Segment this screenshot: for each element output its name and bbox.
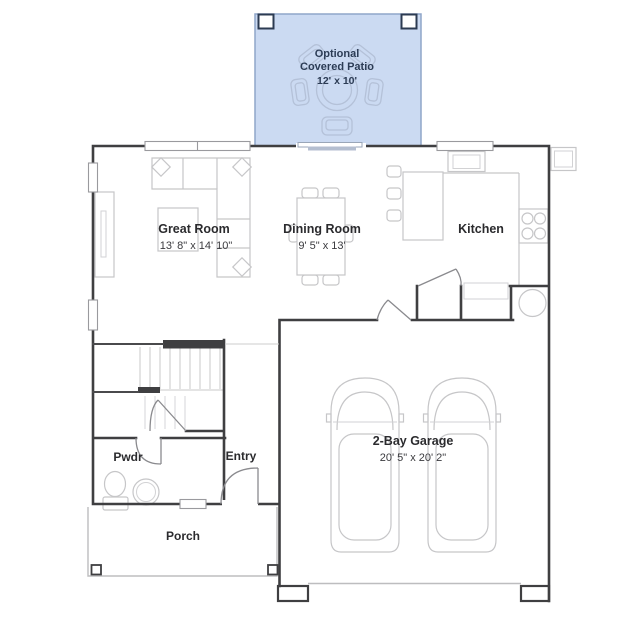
entry-label: Entry	[226, 449, 257, 463]
bar-stool	[387, 166, 401, 177]
stair-treads-upper	[140, 347, 220, 389]
kitchen-island	[403, 172, 443, 240]
water-heater	[519, 290, 546, 317]
patio-label-line2: Covered Patio	[300, 61, 374, 73]
porch-post	[268, 565, 278, 575]
car-outline	[327, 378, 404, 552]
burner	[522, 213, 533, 224]
sectional-sofa	[152, 158, 250, 277]
stair-railing-mid	[138, 387, 160, 393]
floor-plan-drawing: Optional Covered Patio 12' x 10'	[0, 0, 640, 640]
patio-dimensions: 12' x 10'	[317, 75, 357, 87]
dining-chair	[323, 275, 339, 285]
burner	[535, 213, 546, 224]
hall-closet-door	[418, 269, 461, 286]
garage-entry-door	[377, 300, 411, 320]
great-room-dimensions: 13' 8" x 14' 10"	[160, 240, 233, 252]
dining-chair	[302, 188, 318, 198]
garage-wall-stub	[521, 586, 549, 601]
burner	[535, 228, 546, 239]
car-mirror	[327, 414, 332, 422]
patio-post	[259, 15, 274, 29]
dining-table	[297, 198, 345, 275]
great-room-label: Great Room	[158, 222, 230, 236]
patio-post	[402, 15, 417, 29]
car-mirror	[424, 414, 429, 422]
kitchen-window	[437, 142, 493, 151]
tv-console	[95, 192, 114, 277]
tv	[101, 211, 106, 257]
porch-window	[180, 500, 206, 509]
garage-wall-stub	[278, 586, 308, 601]
exterior-equipment-pad-inner	[555, 151, 573, 167]
burner	[522, 228, 533, 239]
toilet-bowl	[105, 472, 126, 497]
patio-sliding-door	[296, 143, 366, 151]
garage-dimensions: 20' 5" x 20' 2"	[380, 452, 447, 464]
interior-walls	[93, 344, 163, 392]
powder-sink-basin	[137, 483, 156, 502]
car-outline	[424, 378, 501, 552]
dining-room-dimensions: 9' 5" x 13'	[298, 240, 345, 252]
pantry-shelf	[464, 283, 508, 299]
porch-post	[92, 565, 102, 575]
dining-chair	[323, 188, 339, 198]
car-mirror	[496, 414, 501, 422]
stair-railing	[163, 340, 225, 349]
floor-plan-page: Optional Covered Patio 12' x 10'	[0, 0, 640, 640]
bar-stool	[387, 188, 401, 199]
kitchen-label: Kitchen	[458, 222, 504, 236]
left-window	[89, 300, 98, 330]
patio-label-line1: Optional	[315, 48, 360, 60]
left-window	[89, 163, 98, 192]
garage-cars	[327, 378, 501, 552]
porch-label: Porch	[166, 529, 200, 543]
great-room-furniture	[95, 158, 251, 277]
front-door	[221, 468, 258, 504]
powder-label: Pwdr	[113, 450, 143, 464]
dining-room-label: Dining Room	[283, 222, 361, 236]
doors	[136, 269, 461, 509]
front-door-opening	[222, 500, 258, 509]
patio-area: Optional Covered Patio 12' x 10'	[255, 14, 421, 146]
dining-chair	[302, 275, 318, 285]
dining-furniture	[289, 188, 353, 285]
bar-stool	[387, 210, 401, 221]
garage-label: 2-Bay Garage	[373, 434, 454, 448]
kitchen-sink-basin	[453, 155, 480, 169]
car-mirror	[399, 414, 404, 422]
